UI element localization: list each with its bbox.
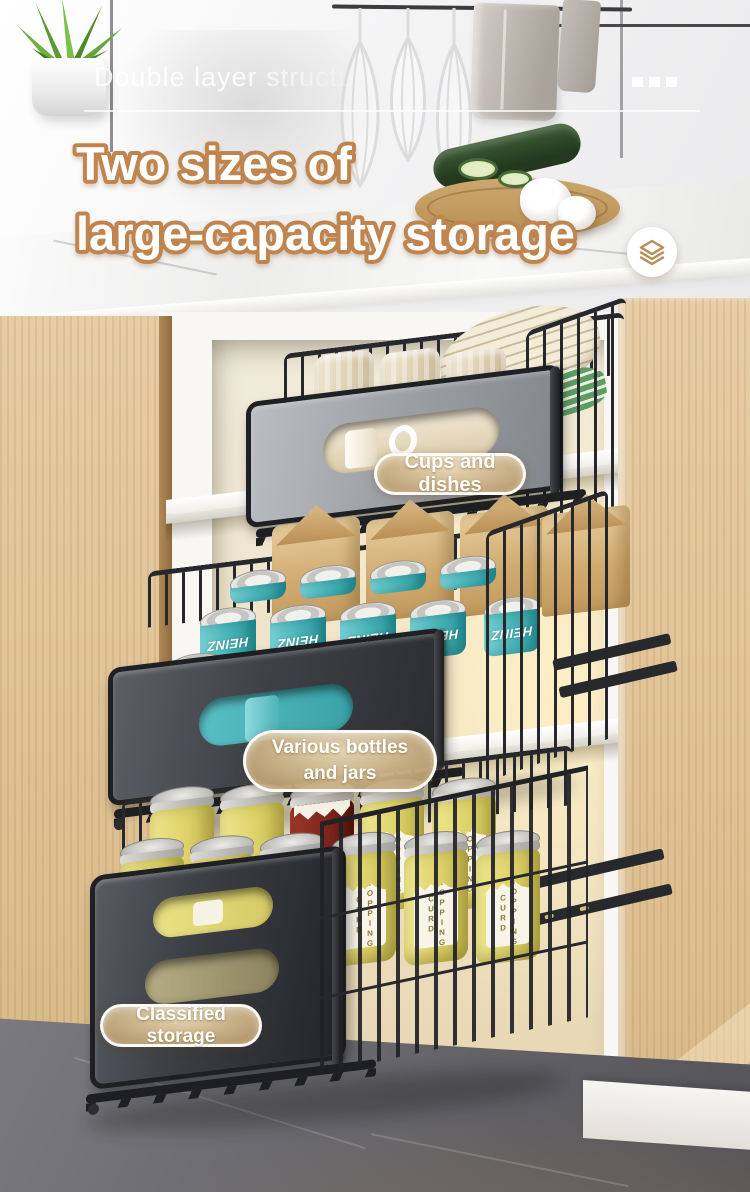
title-line-1: Two sizes of (76, 137, 352, 190)
menu-dot (632, 77, 643, 87)
callout-label-line2: and jars (304, 761, 377, 787)
basket-wire (320, 860, 588, 919)
cup (345, 427, 377, 469)
callout-label: Cups and dishes (377, 451, 523, 497)
stacked-layers-icon (636, 236, 668, 268)
title-line-2: large-capacity storage (76, 207, 575, 260)
pullout-basket-jars: CURDTOPPING CURDTOPPING CURDTOPPING CURD… (92, 742, 597, 1104)
main-title: Two sizes of large-capacity storage (68, 126, 688, 276)
callout-label-line1: Various bottles (272, 735, 408, 761)
hanging-towel-small (557, 0, 601, 93)
callout-various-bottles: Various bottles and jars (243, 730, 437, 792)
basket-front-panel (90, 845, 346, 1090)
floor-vein (371, 1133, 629, 1187)
product-showcase-image: HEINZ HEINZ HEINZ HEINZ HEINZ HEINZ HEIN… (0, 0, 750, 1192)
towel-fold (500, 10, 506, 110)
basket-corner-post (550, 366, 560, 495)
header-divider-line (84, 110, 700, 112)
cabinet-door-right (618, 298, 750, 1156)
handle-cutout (153, 885, 273, 940)
menu-dot (649, 77, 660, 87)
kicker-caption: Double layer structure (94, 62, 380, 93)
basket-wire-side (486, 489, 608, 782)
menu-dots-icon (632, 77, 677, 87)
basket-wire (320, 940, 588, 999)
layers-badge (627, 227, 677, 277)
cabinet-kickboard (583, 1080, 750, 1150)
menu-dot (666, 77, 677, 87)
callout-classified-storage: Classified storage (100, 1004, 262, 1047)
basket-corner-post (434, 629, 444, 770)
callout-cups-and-dishes: Cups and dishes (374, 453, 526, 495)
jar-glimpse (193, 899, 223, 927)
callout-label: Classified storage (103, 1004, 259, 1048)
handle-cutout (145, 946, 279, 1006)
hanging-towel (470, 3, 560, 122)
